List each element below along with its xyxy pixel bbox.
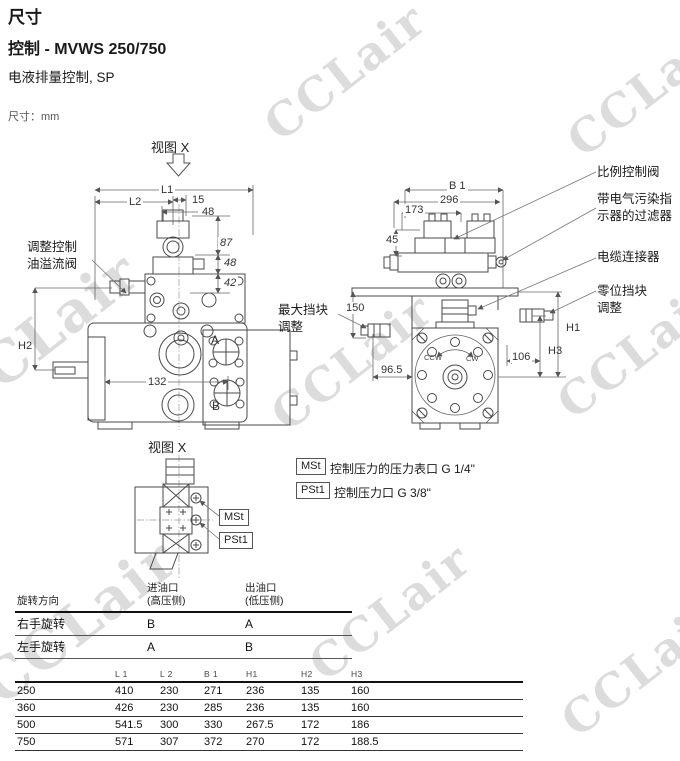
dim-296: 296 — [438, 194, 460, 206]
table-cell: 172 — [299, 717, 349, 734]
mounting-plate-geometry — [352, 288, 518, 296]
table-cell: 172 — [299, 734, 349, 751]
table-cell: 300 — [158, 717, 202, 734]
dim-42: 42 — [222, 277, 238, 289]
zero-stop-stud-geometry — [520, 309, 553, 322]
dimensions-table: L 1 L 2 B 1 H1 H2 H3 250 410 230 271 236… — [15, 669, 523, 751]
table-row: 500 541.5 300 330 267.5 172 186 — [15, 717, 523, 734]
table-cell: 360 — [15, 700, 113, 717]
page-subtitle: 控制 - MVWS 250/750 — [8, 35, 166, 59]
col-inlet-header: 进油口 (高压侧) — [145, 582, 243, 612]
table-cell: 541.5 — [113, 717, 158, 734]
dim-132: 132 — [146, 376, 168, 388]
dim-106: 106 — [510, 351, 532, 363]
callout-cable-connector: 电缆连接器 — [597, 249, 660, 266]
l2-column-header: L 2 — [158, 669, 202, 682]
side-view-leader-lines — [338, 172, 596, 328]
proportional-valve-geometry — [415, 214, 495, 253]
table-row: 750 571 307 372 270 172 188.5 — [15, 734, 523, 751]
dim-150: 150 — [344, 302, 366, 314]
dim-h3: H3 — [548, 345, 562, 357]
manifold-and-filter-geometry — [384, 253, 506, 288]
mst-tag: MSt — [219, 509, 249, 526]
flange-body-geometry — [412, 328, 498, 429]
table-cell: 372 — [202, 734, 244, 751]
callout-zero-stop: 零位挡块调整 — [597, 283, 655, 316]
legend-mst-tag: MSt — [296, 458, 326, 475]
h3-column-header: H3 — [349, 669, 523, 682]
page-title: 尺寸 — [8, 3, 166, 28]
table-row: 左手旋转 A B — [15, 636, 352, 659]
datasheet-page: CCLair CCLair CCLair CCLair CCLair CCLai… — [0, 0, 680, 761]
dim-h2: H2 — [18, 340, 32, 352]
table-row: 360 426 230 285 236 135 160 — [15, 700, 523, 717]
table-cell: 330 — [202, 717, 244, 734]
valve-stack-geometry — [153, 210, 204, 274]
front-view-dimension-lines — [35, 185, 253, 390]
table-cell: 188.5 — [349, 734, 523, 751]
callout-filter: 带电气污染指示器的过滤器 — [597, 191, 680, 224]
table-cell: 135 — [299, 700, 349, 717]
legend-pst1-text: 控制压力口 G 3/8" — [334, 484, 431, 501]
callout-relief-valve: 调整控制油溢流阀 — [27, 239, 85, 272]
table-cell: 236 — [244, 700, 299, 717]
relief-valve-geometry — [110, 279, 145, 295]
dim-87: 87 — [218, 237, 234, 249]
size-column-header — [15, 669, 113, 682]
front-view-label: 视图 X — [151, 137, 189, 156]
ccw-label: CCW — [424, 352, 442, 364]
dim-b1: B 1 — [447, 180, 468, 192]
rotation-direction-table: 旋转方向 进油口 (高压侧) 出油口 (低压侧) 右手旋转 B A 左手旋转 A… — [15, 582, 352, 659]
dim-48-side: 48 — [222, 257, 238, 269]
table-cell: 160 — [349, 700, 523, 717]
dim-96-5: 96.5 — [379, 364, 404, 376]
table-cell: 285 — [202, 700, 244, 717]
callout-proportional-valve: 比例控制阀 — [597, 164, 660, 181]
view-x-detail-drawing — [135, 455, 219, 578]
callout-max-stop: 最大挡块调整 — [278, 302, 336, 335]
dim-h1: H1 — [566, 322, 580, 334]
table-header-row: L 1 L 2 B 1 H1 H2 H3 — [15, 669, 523, 682]
table-cell: 186 — [349, 717, 523, 734]
b1-column-header: B 1 — [202, 669, 244, 682]
table-cell: 267.5 — [244, 717, 299, 734]
pump-side-view-drawing — [338, 172, 596, 429]
table-cell: 426 — [113, 700, 158, 717]
table-cell: 500 — [15, 717, 113, 734]
table-header-row: 旋转方向 进油口 (高压侧) 出油口 (低压侧) — [15, 582, 352, 612]
dim-l2: L2 — [127, 196, 143, 208]
max-stop-stud-geometry — [361, 324, 390, 337]
units-note: 尺寸：mm — [8, 108, 59, 124]
detail-view-label: 视图 X — [148, 437, 186, 456]
dim-48-top: 48 — [202, 206, 214, 218]
table-cell: 750 — [15, 734, 113, 751]
side-view-dimension-lines — [353, 190, 566, 381]
table-row: 250 410 230 271 236 135 160 — [15, 682, 523, 700]
cable-connector-geometry — [436, 300, 476, 328]
table-cell: B — [243, 636, 352, 659]
view-direction-arrow-icon — [167, 154, 190, 176]
dim-15: 15 — [192, 194, 204, 206]
col-outlet-header: 出油口 (低压侧) — [243, 582, 352, 612]
table-cell: 135 — [299, 682, 349, 700]
table-cell: 410 — [113, 682, 158, 700]
table-cell: 230 — [158, 682, 202, 700]
table-cell: B — [145, 612, 243, 636]
table-cell: 230 — [158, 700, 202, 717]
h1-column-header: H1 — [244, 669, 299, 682]
table-cell: 307 — [158, 734, 202, 751]
dim-173: 173 — [403, 204, 425, 216]
table-cell: A — [145, 636, 243, 659]
table-cell: 160 — [349, 682, 523, 700]
table-cell: 左手旋转 — [15, 636, 145, 659]
h2-column-header: H2 — [299, 669, 349, 682]
col-direction-header: 旋转方向 — [15, 582, 145, 612]
table-cell: A — [243, 612, 352, 636]
l1-column-header: L 1 — [113, 669, 158, 682]
table-cell: 271 — [202, 682, 244, 700]
dim-l1: L1 — [159, 184, 175, 196]
port-a-label: A — [211, 334, 219, 346]
legend-mst-text: 控制压力的压力表口 G 1/4" — [330, 460, 475, 477]
page-description: 电液排量控制, SP — [8, 66, 166, 86]
dim-45: 45 — [384, 234, 400, 246]
table-cell: 236 — [244, 682, 299, 700]
port-b-label: B — [212, 400, 220, 412]
table-cell: 571 — [113, 734, 158, 751]
header-block: 尺寸 控制 - MVWS 250/750 电液排量控制, SP — [8, 0, 166, 86]
cw-label: CW — [466, 353, 479, 365]
table-cell: 270 — [244, 734, 299, 751]
table-cell: 右手旋转 — [15, 612, 145, 636]
pst1-tag: PSt1 — [219, 532, 253, 549]
table-cell: 250 — [15, 682, 113, 700]
legend-pst1-tag: PSt1 — [296, 482, 330, 499]
table-row: 右手旋转 B A — [15, 612, 352, 636]
pilot-valve-geometry — [150, 459, 194, 569]
